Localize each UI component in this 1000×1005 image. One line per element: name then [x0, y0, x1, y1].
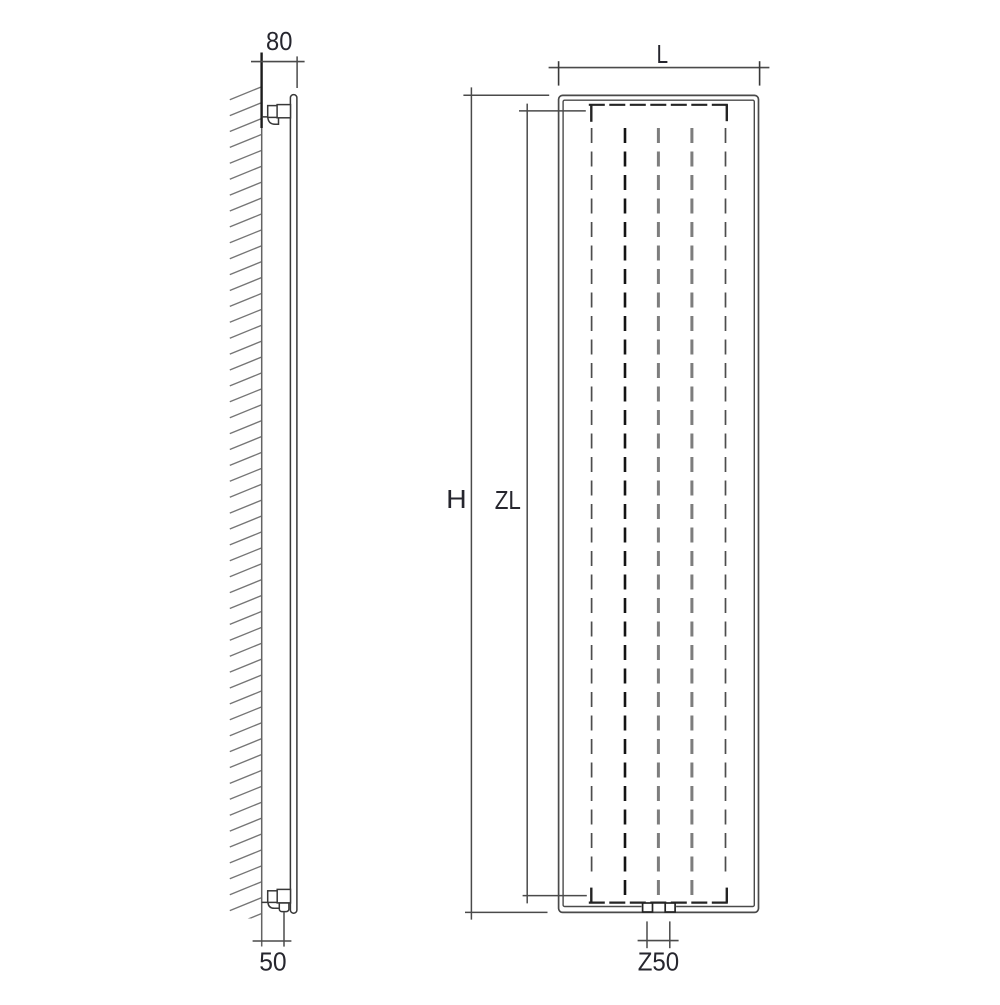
svg-text:Z50: Z50 [638, 948, 679, 976]
svg-text:ZL: ZL [495, 487, 521, 515]
svg-text:50: 50 [259, 949, 286, 977]
svg-text:H: H [446, 486, 467, 514]
svg-text:80: 80 [266, 28, 292, 56]
svg-text:L: L [657, 41, 669, 69]
